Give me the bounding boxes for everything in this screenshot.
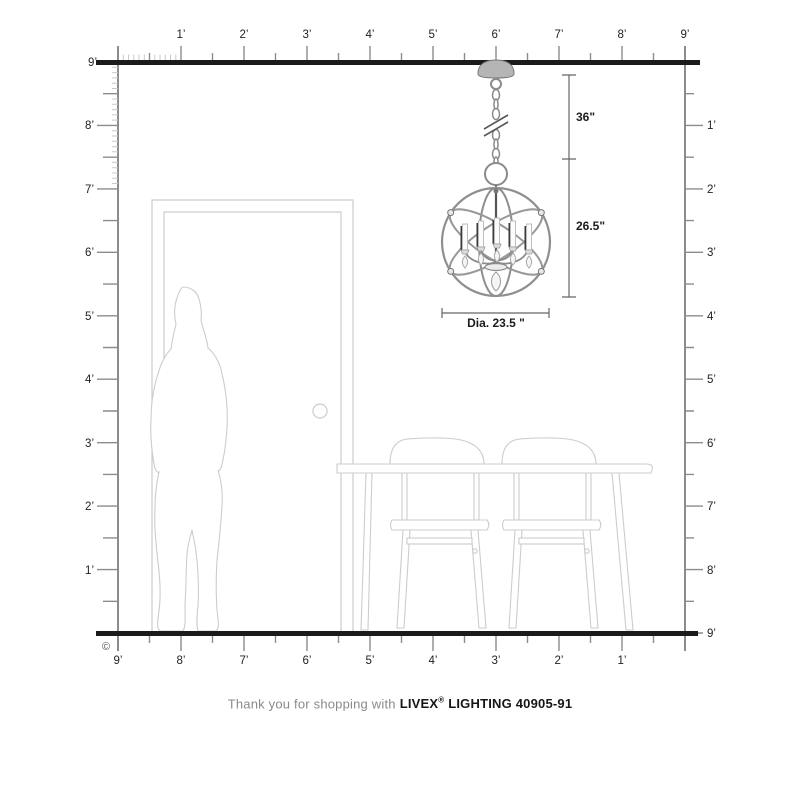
bottom-ruler-label: 9’ bbox=[114, 655, 123, 667]
candle-sleeve bbox=[511, 221, 516, 247]
top-ruler-label: 5’ bbox=[429, 29, 438, 41]
bottom-bobeche bbox=[485, 264, 507, 271]
stem-top-knob bbox=[494, 189, 499, 194]
scale-diagram: 36" 26.5" Dia. 23.5 " 1’ 2’ 3’ 4’ 5’ 6’ … bbox=[0, 0, 800, 800]
chair-front-leg bbox=[471, 530, 486, 628]
chair-joint-detail bbox=[473, 549, 477, 553]
right-ruler-label: 4’ bbox=[707, 311, 716, 323]
candle-sleeve bbox=[495, 218, 500, 244]
candle-sleeve bbox=[527, 224, 532, 250]
top-ruler-label: 9’ bbox=[681, 29, 690, 41]
ceiling-line bbox=[96, 60, 700, 65]
ring-knob bbox=[538, 268, 544, 274]
registered-trademark-symbol: ® bbox=[438, 696, 444, 705]
chain-drop-label: 36" bbox=[576, 110, 595, 124]
stem-ball bbox=[485, 163, 507, 185]
top-ruler-label: 4’ bbox=[366, 29, 375, 41]
bottom-ruler-label: 3’ bbox=[492, 655, 501, 667]
right-ruler-label: 3’ bbox=[707, 247, 716, 259]
drop-crystal bbox=[526, 256, 531, 268]
bottom-ruler-label: 6’ bbox=[303, 655, 312, 667]
candle bbox=[493, 218, 501, 262]
drop-crystal bbox=[494, 250, 499, 262]
candle-cup bbox=[509, 247, 517, 251]
right-ruler-minor-ticks bbox=[685, 94, 694, 602]
chair-backrest bbox=[390, 438, 484, 464]
ceiling-canopy bbox=[478, 60, 514, 78]
left-ruler-label: 2’ bbox=[85, 501, 94, 513]
left-ruler-label: 1’ bbox=[85, 565, 94, 577]
ring-knob bbox=[538, 210, 544, 216]
chair-stretcher bbox=[407, 538, 472, 544]
candle-cup bbox=[525, 250, 533, 254]
left-ruler-label: 3’ bbox=[85, 438, 94, 450]
left-ruler-label: 7’ bbox=[85, 184, 94, 196]
candle bbox=[461, 224, 469, 268]
candle bbox=[509, 221, 517, 265]
candle bbox=[525, 224, 533, 268]
candle-cup bbox=[477, 247, 485, 251]
right-ruler-labels: 1’ 2’ 3’ 4’ 5’ 6’ 7’ 8’ 9’ bbox=[707, 120, 716, 640]
bottom-ruler-minor-ticks bbox=[150, 635, 654, 643]
table-right-leg bbox=[612, 473, 633, 630]
candle-sleeve bbox=[463, 224, 468, 250]
top-ruler-label: 6’ bbox=[492, 29, 501, 41]
top-ruler-label: 7’ bbox=[555, 29, 564, 41]
bottom-ruler-labels: 9’ 8’ 7’ 6’ 5’ 4’ 3’ 2’ 1’ bbox=[114, 655, 627, 667]
bottom-ruler-major-ticks bbox=[118, 635, 622, 651]
copyright-symbol: © bbox=[102, 641, 110, 653]
top-ruler-label: 3’ bbox=[303, 29, 312, 41]
chain-link bbox=[493, 109, 500, 120]
chair-rear-leg bbox=[397, 530, 410, 628]
chair-back-post bbox=[402, 473, 407, 520]
top-ruler-label: 1’ bbox=[177, 29, 186, 41]
left-ruler-labels: 9’ 8’ 7’ 6’ 5’ 4’ 3’ 2’ 1’ bbox=[85, 57, 97, 577]
right-ruler-label: 9’ bbox=[707, 628, 716, 640]
candle-cup bbox=[461, 250, 469, 254]
chair-back-post bbox=[474, 473, 479, 520]
right-ruler-label: 1’ bbox=[707, 120, 716, 132]
bottom-ruler-label: 2’ bbox=[555, 655, 564, 667]
caption-prefix: Thank you for shopping with bbox=[228, 696, 396, 711]
right-ruler-label: 6’ bbox=[707, 438, 716, 450]
bottom-ruler-label: 4’ bbox=[429, 655, 438, 667]
right-ruler-label: 7’ bbox=[707, 501, 716, 513]
top-ruler-label: 2’ bbox=[240, 29, 249, 41]
candle-cup bbox=[493, 244, 501, 248]
door-knob bbox=[313, 404, 327, 418]
candle-sleeve bbox=[479, 221, 484, 247]
caption-brand-line: LIVEX® LIGHTING 40905-91 bbox=[400, 696, 573, 711]
right-ruler-label: 2’ bbox=[707, 184, 716, 196]
left-ruler-minor-ticks bbox=[103, 94, 118, 602]
top-ruler-label: 8’ bbox=[618, 29, 627, 41]
top-ruler-major-ticks bbox=[181, 46, 685, 62]
fixture-height-label: 26.5" bbox=[576, 219, 605, 233]
caption: Thank you for shopping withLIVEX® LIGHTI… bbox=[0, 696, 800, 711]
product-model: LIGHTING 40905-91 bbox=[448, 696, 572, 711]
right-ruler-major-ticks bbox=[685, 125, 703, 633]
bottom-ruler-label: 1’ bbox=[618, 655, 627, 667]
ring-knob bbox=[448, 210, 454, 216]
drop-crystal bbox=[510, 253, 515, 265]
inch-ticks bbox=[112, 55, 176, 184]
table-top bbox=[337, 464, 652, 473]
drop-crystal bbox=[478, 253, 483, 265]
dining-table bbox=[337, 464, 652, 630]
diagram-canvas: 36" 26.5" Dia. 23.5 " 1’ 2’ 3’ 4’ 5’ 6’ … bbox=[0, 0, 800, 800]
bottom-ruler-label: 5’ bbox=[366, 655, 375, 667]
chair-seat bbox=[391, 520, 489, 530]
bottom-ruler-label: 7’ bbox=[240, 655, 249, 667]
floor-line bbox=[96, 631, 698, 636]
left-ruler-label: 6’ bbox=[85, 247, 94, 259]
right-ruler-label: 8’ bbox=[707, 565, 716, 577]
left-ruler-label: 9’ bbox=[88, 57, 97, 69]
table-left-leg bbox=[361, 473, 372, 630]
left-ruler-label: 8’ bbox=[85, 120, 94, 132]
left-ruler-label: 5’ bbox=[85, 311, 94, 323]
left-ruler-label: 4’ bbox=[85, 374, 94, 386]
top-ruler-labels: 1’ 2’ 3’ 4’ 5’ 6’ 7’ 8’ 9’ bbox=[177, 29, 690, 41]
bottom-ruler-label: 8’ bbox=[177, 655, 186, 667]
dimension-lines bbox=[442, 75, 576, 318]
canopy-ring bbox=[491, 79, 501, 89]
candle bbox=[477, 221, 485, 265]
ring-knob bbox=[448, 268, 454, 274]
fixture-diameter-label: Dia. 23.5 " bbox=[467, 316, 525, 330]
drop-crystal bbox=[462, 256, 467, 268]
chandelier bbox=[441, 60, 550, 296]
right-ruler-label: 5’ bbox=[707, 374, 716, 386]
finial-crystal bbox=[492, 272, 501, 291]
brand-name: LIVEX bbox=[400, 696, 439, 711]
